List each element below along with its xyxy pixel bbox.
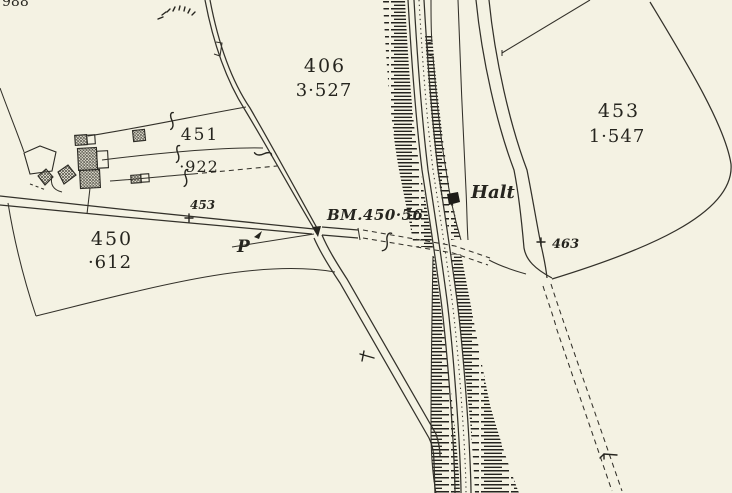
- building-hatched-5: [131, 175, 142, 184]
- road-parcel-label: 453: [190, 198, 215, 212]
- parcel-450-acreage: ·612: [88, 252, 132, 273]
- spot-463-label: 463: [552, 237, 579, 252]
- post-label: P: [236, 237, 251, 257]
- parcel-451-number: 451: [181, 125, 219, 145]
- building-hatched-4: [133, 129, 146, 141]
- building-hatched-3: [75, 135, 88, 146]
- parcel-453e-number: 453: [598, 100, 640, 122]
- parcel-451-acreage: ·922: [179, 157, 219, 176]
- parcel-453e-acreage: 1·547: [589, 126, 646, 147]
- halt-label: Halt: [470, 182, 516, 203]
- edge-clipped-label: 988: [2, 0, 29, 10]
- benchmark-label: BM.450·56: [326, 206, 423, 224]
- ordnance-map: 406 3·527 451 ·922 450 ·612 453 1·547 Ha…: [0, 0, 732, 493]
- building-hatched-main-lower: [80, 169, 101, 188]
- building-hatched-main-upper: [77, 147, 97, 170]
- parcel-406-number: 406: [304, 55, 346, 77]
- parcel-450-number: 450: [91, 228, 133, 250]
- parcel-406-acreage: 3·527: [296, 80, 353, 101]
- map-canvas: 406 3·527 451 ·922 450 ·612 453 1·547 Ha…: [0, 0, 732, 493]
